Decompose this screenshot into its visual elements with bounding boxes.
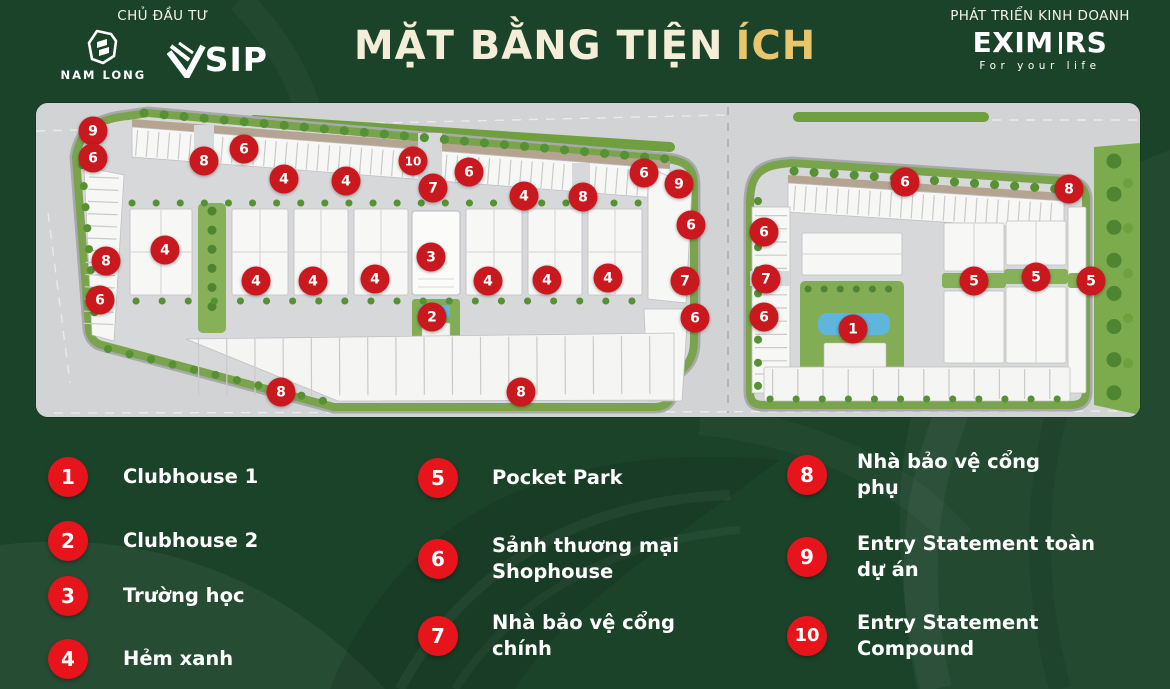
map-marker-7: 7: [752, 265, 781, 294]
legend-label-1: Clubhouse 1: [123, 464, 258, 490]
map-marker-8: 8: [507, 378, 536, 407]
investor-label: CHỦ ĐẦU TƯ: [58, 8, 268, 24]
legend-label-4: Hẻm xanh: [123, 646, 233, 672]
nam-long-logo: NAM LONG: [60, 29, 147, 82]
map-marker-3: 3: [417, 243, 446, 272]
legend-label-8: Nhà bảo vệ cổngphụ: [857, 449, 1040, 500]
legend-marker-9: 9: [787, 537, 827, 577]
legend-marker-4: 4: [48, 639, 88, 679]
slide: CHỦ ĐẦU TƯ NAM LONG SIP MẶT BẰNG: [0, 0, 1170, 689]
nam-long-wordmark: NAM LONG: [61, 68, 147, 82]
legend-item-4: 4Hẻm xanh: [48, 639, 233, 679]
legend-label-3: Trường học: [123, 583, 245, 609]
developer-label: PHÁT TRIỂN KINH DOANH: [930, 8, 1150, 24]
map-marker-9: 9: [79, 117, 108, 146]
legend-label-6: Sảnh thương mạiShophouse: [492, 533, 679, 584]
vsip-wordmark: SIP: [205, 43, 268, 76]
map-marker-4: 4: [361, 265, 390, 294]
legend-item-10: 10Entry StatementCompound: [787, 610, 1038, 661]
map-marker-8: 8: [92, 247, 121, 276]
vsip-logo: SIP: [167, 42, 268, 78]
map-marker-5: 5: [1022, 263, 1051, 292]
map-marker-6: 6: [630, 159, 659, 188]
legend-item-1: 1Clubhouse 1: [48, 457, 258, 497]
legend-item-7: 7Nhà bảo vệ cổngchính: [418, 610, 675, 661]
map-marker-6: 6: [750, 303, 779, 332]
legend-item-8: 8Nhà bảo vệ cổngphụ: [787, 449, 1040, 500]
map-marker-6: 6: [681, 304, 710, 333]
legend-item-3: 3Trường học: [48, 576, 245, 616]
map-marker-6: 6: [79, 144, 108, 173]
map-marker-4: 4: [151, 236, 180, 265]
map-marker-4: 4: [332, 167, 361, 196]
developer-block: PHÁT TRIỂN KINH DOANH EXIMRS For your li…: [930, 8, 1150, 72]
legend-marker-3: 3: [48, 576, 88, 616]
map-marker-7: 7: [671, 267, 700, 296]
legend-label-10: Entry StatementCompound: [857, 610, 1038, 661]
map-marker-4: 4: [474, 267, 503, 296]
map-marker-8: 8: [190, 147, 219, 176]
map-marker-9: 9: [665, 170, 694, 199]
legend-item-2: 2Clubhouse 2: [48, 521, 258, 561]
master-plan-map: 968644107648696864444324447688686761555: [36, 103, 1140, 417]
legend-marker-2: 2: [48, 521, 88, 561]
map-markers-layer: 968644107648696864444324447688686761555: [36, 103, 1140, 417]
investor-block: CHỦ ĐẦU TƯ NAM LONG SIP: [58, 8, 268, 82]
map-marker-4: 4: [594, 264, 623, 293]
map-marker-6: 6: [230, 135, 259, 164]
legend-item-5: 5Pocket Park: [418, 458, 623, 498]
nam-long-icon: [86, 29, 120, 65]
map-marker-2: 2: [418, 303, 447, 332]
map-marker-4: 4: [242, 267, 271, 296]
legend-item-9: 9Entry Statement toàndự án: [787, 531, 1095, 582]
map-marker-1: 1: [839, 315, 868, 344]
map-marker-6: 6: [891, 168, 920, 197]
legend-marker-1: 1: [48, 457, 88, 497]
vsip-v-icon: [167, 42, 207, 78]
map-marker-10: 10: [399, 147, 428, 176]
map-marker-4: 4: [270, 165, 299, 194]
map-marker-4: 4: [299, 267, 328, 296]
map-marker-6: 6: [455, 158, 484, 187]
eximrs-wordmark-left: EXIM: [973, 29, 1054, 57]
eximrs-bar: [1059, 32, 1062, 54]
eximrs-wordmark-right: RS: [1065, 29, 1108, 57]
map-marker-6: 6: [750, 218, 779, 247]
legend-label-9: Entry Statement toàndự án: [857, 531, 1095, 582]
page-title: MẶT BẰNG TIỆNÍCH: [285, 24, 885, 68]
map-marker-8: 8: [1055, 175, 1084, 204]
map-marker-4: 4: [510, 182, 539, 211]
legend-label-5: Pocket Park: [492, 465, 623, 491]
legend-marker-8: 8: [787, 455, 827, 495]
map-marker-7: 7: [419, 174, 448, 203]
legend-marker-7: 7: [418, 616, 458, 656]
map-marker-8: 8: [569, 183, 598, 212]
legend-label-2: Clubhouse 2: [123, 528, 258, 554]
map-marker-8: 8: [267, 378, 296, 407]
map-marker-5: 5: [960, 267, 989, 296]
legend-marker-5: 5: [418, 458, 458, 498]
eximrs-tagline: For your life: [979, 60, 1100, 72]
page-title-main: MẶT BẰNG TIỆN: [354, 23, 724, 69]
map-marker-6: 6: [86, 286, 115, 315]
legend-item-6: 6Sảnh thương mạiShophouse: [418, 533, 679, 584]
legend-label-7: Nhà bảo vệ cổngchính: [492, 610, 675, 661]
map-marker-6: 6: [677, 211, 706, 240]
page-title-accent: ÍCH: [735, 23, 816, 69]
legend-marker-6: 6: [418, 539, 458, 579]
map-marker-4: 4: [533, 266, 562, 295]
eximrs-logo: EXIMRS For your life: [930, 29, 1150, 72]
legend-marker-10: 10: [787, 616, 827, 656]
map-marker-5: 5: [1077, 267, 1106, 296]
